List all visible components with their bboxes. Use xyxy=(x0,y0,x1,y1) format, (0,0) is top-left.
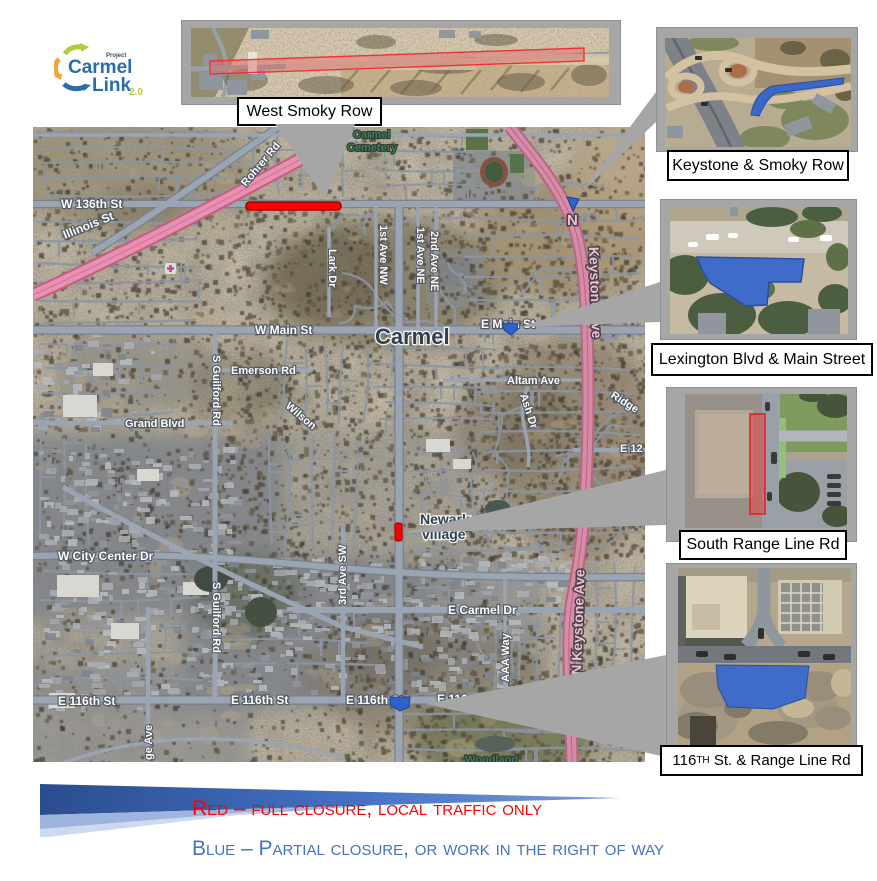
svg-text:Carmel: Carmel xyxy=(375,324,450,349)
svg-text:W City Center Dr: W City Center Dr xyxy=(58,549,154,563)
svg-text:W Main St: W Main St xyxy=(255,323,312,337)
svg-text:ge Ave: ge Ave xyxy=(143,725,155,760)
svg-text:1st Ave NE: 1st Ave NE xyxy=(414,227,426,284)
svg-text:S Guilford Rd: S Guilford Rd xyxy=(210,582,222,653)
svg-text:N: N xyxy=(567,212,578,229)
svg-text:2.0: 2.0 xyxy=(129,87,143,98)
svg-text:S Guilford Rd: S Guilford Rd xyxy=(210,355,222,426)
svg-text:2nd Ave NE: 2nd Ave NE xyxy=(428,231,440,291)
svg-text:E 116th St: E 116th St xyxy=(231,693,288,707)
svg-text:Altam Ave: Altam Ave xyxy=(507,375,560,387)
svg-text:Emerson Rd: Emerson Rd xyxy=(231,365,296,377)
svg-text:E 116th St: E 116th St xyxy=(58,694,115,708)
svg-text:W 136th St: W 136th St xyxy=(61,197,122,211)
svg-text:E Carmel Dr: E Carmel Dr xyxy=(448,603,517,617)
svg-text:1st Ave NW: 1st Ave NW xyxy=(377,225,389,285)
svg-text:3rd Ave SW: 3rd Ave SW xyxy=(337,544,349,605)
svg-text:Lark Dr: Lark Dr xyxy=(326,249,338,288)
svg-text:Link: Link xyxy=(92,75,131,96)
svg-text:E 12: E 12 xyxy=(620,443,643,455)
svg-text:Project: Project xyxy=(106,53,126,59)
svg-text:Grand Blvd: Grand Blvd xyxy=(125,418,184,430)
